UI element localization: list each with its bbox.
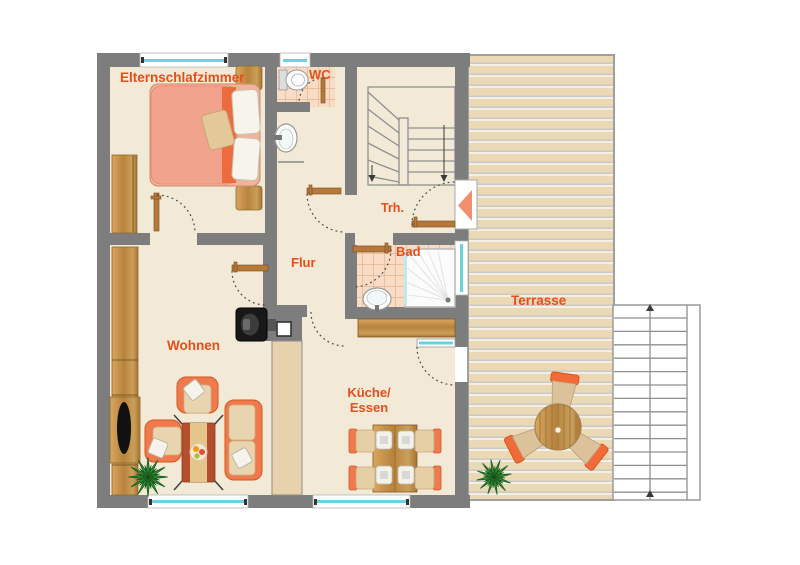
dining-chair (349, 429, 375, 453)
shower-drain (446, 298, 451, 303)
floor-plan-drawing: Elternschlafzimmer WC Trh. Flur Bad Wohn… (0, 0, 800, 565)
hall-label: Flur (291, 255, 316, 270)
bath-window (455, 241, 468, 295)
armchair (177, 377, 218, 413)
wc-label: WC (309, 67, 331, 82)
sofa (225, 400, 262, 480)
dining-chair (415, 429, 441, 453)
floor-plan: Elternschlafzimmer WC Trh. Flur Bad Wohn… (0, 0, 800, 565)
bedroom-window (140, 53, 228, 67)
fruit-bowl-icon (190, 444, 207, 461)
nightstand (236, 186, 262, 210)
bedroom-label: Elternschlafzimmer (120, 70, 245, 85)
terrace-label: Terrasse (511, 293, 567, 308)
dining-chair (415, 466, 441, 490)
outdoor-staircase (613, 304, 700, 500)
stairwell-label: Trh. (381, 201, 404, 215)
wc-window (280, 53, 310, 67)
dining-chair (349, 466, 375, 490)
living-label: Wohnen (167, 338, 220, 353)
dining-table (373, 425, 417, 492)
kitchen-label-line1: Küche/ (347, 385, 391, 400)
sideboard-tv (110, 247, 140, 495)
double-bed (150, 84, 261, 186)
bath-label: Bad (396, 244, 421, 259)
armchair (145, 420, 181, 462)
living-kitchen-partition (272, 341, 302, 495)
kitchen-label-line2: Essen (350, 400, 388, 415)
toilet (279, 70, 308, 90)
terrace-table (535, 404, 581, 450)
kitchen-window (313, 495, 410, 508)
tv-icon (117, 402, 131, 454)
wardrobe (112, 155, 137, 233)
living-window (148, 495, 248, 508)
washbasin (274, 124, 297, 152)
kitchen-counter (358, 319, 455, 337)
